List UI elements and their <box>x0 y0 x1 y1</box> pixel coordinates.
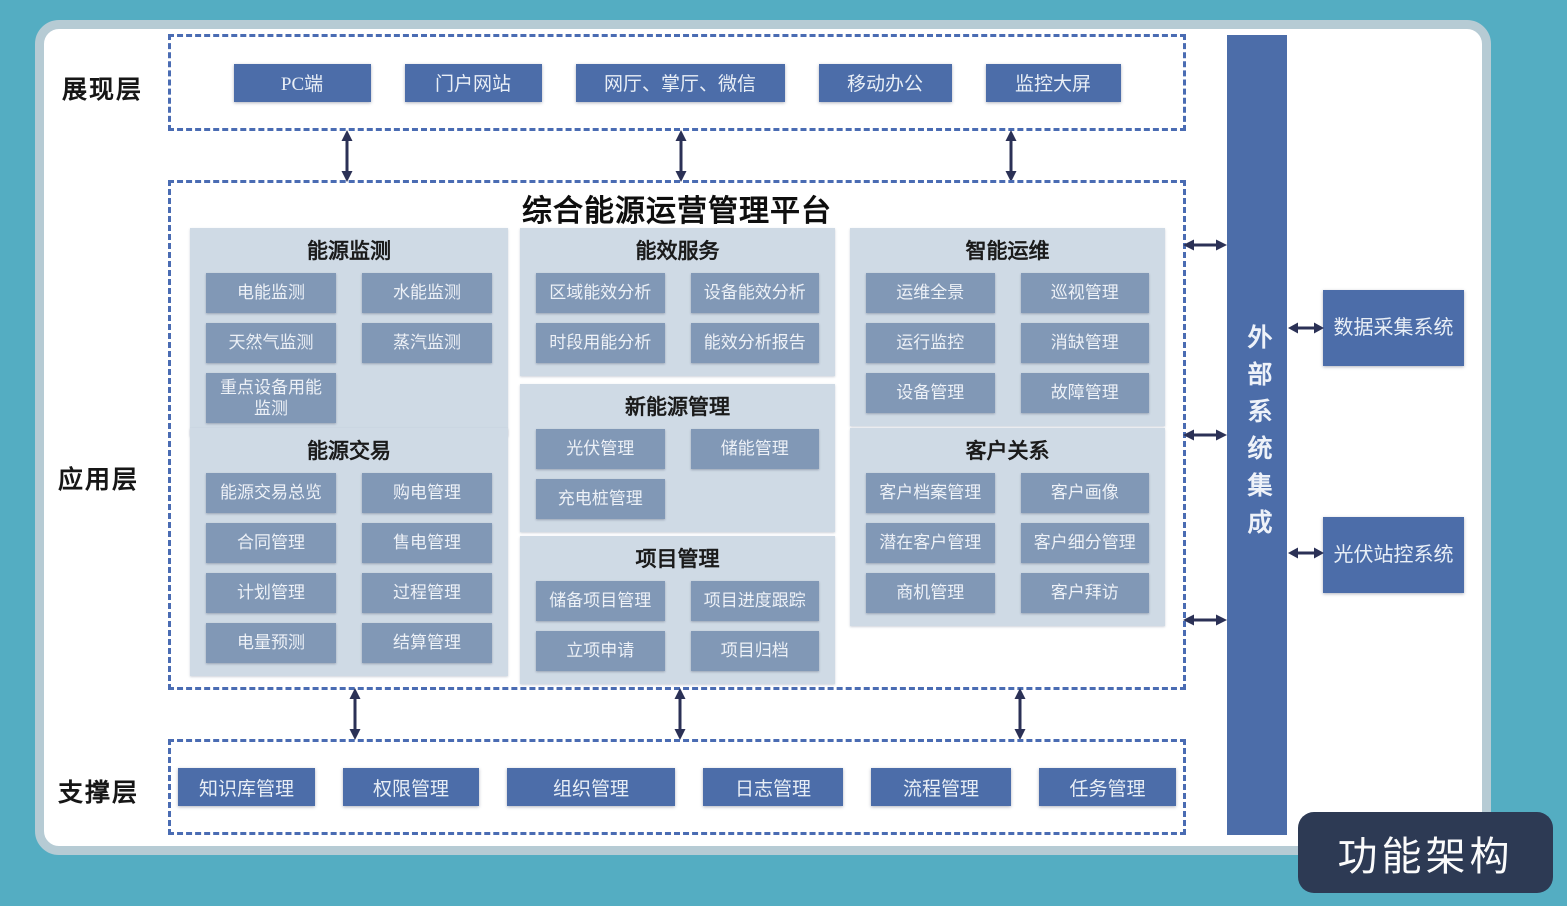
module-node: 充电桩管理 <box>536 479 665 519</box>
double-arrow-icon <box>1183 611 1227 629</box>
double-arrow-icon <box>671 688 689 740</box>
node-portal-website: 门户网站 <box>405 64 542 102</box>
section-energy-trading: 能源交易 能源交易总览 购电管理 合同管理 售电管理 计划管理 过程管理 电量预… <box>190 428 508 676</box>
module-node: 商机管理 <box>866 573 995 613</box>
module-node: 客户档案管理 <box>866 473 995 513</box>
node-organization-mgmt: 组织管理 <box>507 768 675 806</box>
section-grid: 客户档案管理 客户画像 潜在客户管理 客户细分管理 商机管理 客户拜访 <box>850 472 1165 626</box>
section-grid: 光伏管理 储能管理 充电桩管理 <box>520 428 835 532</box>
node-monitoring-screen: 监控大屏 <box>986 64 1121 102</box>
section-title: 客户关系 <box>850 428 1165 472</box>
section-title: 能源交易 <box>190 428 508 472</box>
section-grid: 储备项目管理 项目进度跟踪 立项申请 项目归档 <box>520 580 835 684</box>
external-system-integration-bar: 外部系统集成 <box>1227 35 1287 835</box>
module-node: 潜在客户管理 <box>866 523 995 563</box>
node-knowledge-base: 知识库管理 <box>178 768 315 806</box>
section-title: 项目管理 <box>520 536 835 580</box>
section-intelligent-om: 智能运维 运维全景 巡视管理 运行监控 消缺管理 设备管理 故障管理 <box>850 228 1165 426</box>
section-title: 智能运维 <box>850 228 1165 272</box>
module-node: 消缺管理 <box>1021 323 1150 363</box>
module-node: 购电管理 <box>362 473 492 513</box>
support-layer-box: 知识库管理 权限管理 组织管理 日志管理 流程管理 任务管理 <box>168 739 1186 835</box>
module-node: 能源交易总览 <box>206 473 336 513</box>
module-node: 客户细分管理 <box>1021 523 1150 563</box>
module-node: 区域能效分析 <box>536 273 665 313</box>
section-energy-efficiency: 能效服务 区域能效分析 设备能效分析 时段用能分析 能效分析报告 <box>520 228 835 376</box>
module-node: 能效分析报告 <box>691 323 820 363</box>
node-task-mgmt: 任务管理 <box>1039 768 1176 806</box>
module-node: 过程管理 <box>362 573 492 613</box>
module-node: 客户拜访 <box>1021 573 1150 613</box>
section-customer-relations: 客户关系 客户档案管理 客户画像 潜在客户管理 客户细分管理 商机管理 客户拜访 <box>850 428 1165 626</box>
module-node: 水能监测 <box>362 273 492 313</box>
module-node: 天然气监测 <box>206 323 336 363</box>
double-arrow-icon <box>338 130 356 182</box>
module-node: 立项申请 <box>536 631 665 671</box>
module-node: 光伏管理 <box>536 429 665 469</box>
module-node: 运维全景 <box>866 273 995 313</box>
architecture-badge: 功能架构 <box>1298 812 1553 893</box>
presentation-layer-label: 展现层 <box>62 70 143 106</box>
module-node: 售电管理 <box>362 523 492 563</box>
section-grid: 能源交易总览 购电管理 合同管理 售电管理 计划管理 过程管理 电量预测 结算管… <box>190 472 508 676</box>
module-node: 电量预测 <box>206 623 336 663</box>
module-node: 储能管理 <box>691 429 820 469</box>
double-arrow-icon <box>1288 544 1324 562</box>
module-node: 合同管理 <box>206 523 336 563</box>
module-node: 电能监测 <box>206 273 336 313</box>
module-node: 蒸汽监测 <box>362 323 492 363</box>
module-node: 运行监控 <box>866 323 995 363</box>
node-pv-station-control-system: 光伏站控系统 <box>1323 517 1464 593</box>
module-node: 储备项目管理 <box>536 581 665 621</box>
platform-title: 综合能源运营管理平台 <box>168 186 1186 230</box>
section-grid: 电能监测 水能监测 天然气监测 蒸汽监测 重点设备用能监测 <box>190 272 508 436</box>
node-process-mgmt: 流程管理 <box>871 768 1011 806</box>
double-arrow-icon <box>1183 236 1227 254</box>
node-permission-mgmt: 权限管理 <box>343 768 479 806</box>
application-layer-label: 应用层 <box>58 460 139 496</box>
module-node: 设备管理 <box>866 373 995 413</box>
module-node: 计划管理 <box>206 573 336 613</box>
module-node: 巡视管理 <box>1021 273 1150 313</box>
module-node: 时段用能分析 <box>536 323 665 363</box>
node-log-mgmt: 日志管理 <box>703 768 843 806</box>
module-node: 结算管理 <box>362 623 492 663</box>
double-arrow-icon <box>346 688 364 740</box>
module-node: 重点设备用能监测 <box>206 373 336 423</box>
double-arrow-icon <box>1002 130 1020 182</box>
section-title: 能源监测 <box>190 228 508 272</box>
double-arrow-icon <box>1011 688 1029 740</box>
diagram-canvas: 展现层 应用层 支撑层 PC端 门户网站 网厅、掌厅、微信 移动办公 监控大屏 … <box>0 0 1567 906</box>
module-node: 设备能效分析 <box>691 273 820 313</box>
section-energy-monitoring: 能源监测 电能监测 水能监测 天然气监测 蒸汽监测 重点设备用能监测 <box>190 228 508 436</box>
section-grid: 区域能效分析 设备能效分析 时段用能分析 能效分析报告 <box>520 272 835 376</box>
node-pc-client: PC端 <box>234 64 371 102</box>
double-arrow-icon <box>672 130 690 182</box>
section-title: 新能源管理 <box>520 384 835 428</box>
node-data-acquisition-system: 数据采集系统 <box>1323 290 1464 366</box>
section-new-energy: 新能源管理 光伏管理 储能管理 充电桩管理 <box>520 384 835 532</box>
support-layer-label: 支撑层 <box>58 773 139 809</box>
node-web-hall-wechat: 网厅、掌厅、微信 <box>576 64 785 102</box>
section-project-management: 项目管理 储备项目管理 项目进度跟踪 立项申请 项目归档 <box>520 536 835 684</box>
presentation-layer-box: PC端 门户网站 网厅、掌厅、微信 移动办公 监控大屏 <box>168 34 1186 131</box>
node-mobile-office: 移动办公 <box>819 64 952 102</box>
module-node: 项目进度跟踪 <box>691 581 820 621</box>
double-arrow-icon <box>1183 426 1227 444</box>
section-grid: 运维全景 巡视管理 运行监控 消缺管理 设备管理 故障管理 <box>850 272 1165 426</box>
module-node: 项目归档 <box>691 631 820 671</box>
section-title: 能效服务 <box>520 228 835 272</box>
module-node: 客户画像 <box>1021 473 1150 513</box>
double-arrow-icon <box>1288 319 1324 337</box>
module-node: 故障管理 <box>1021 373 1150 413</box>
